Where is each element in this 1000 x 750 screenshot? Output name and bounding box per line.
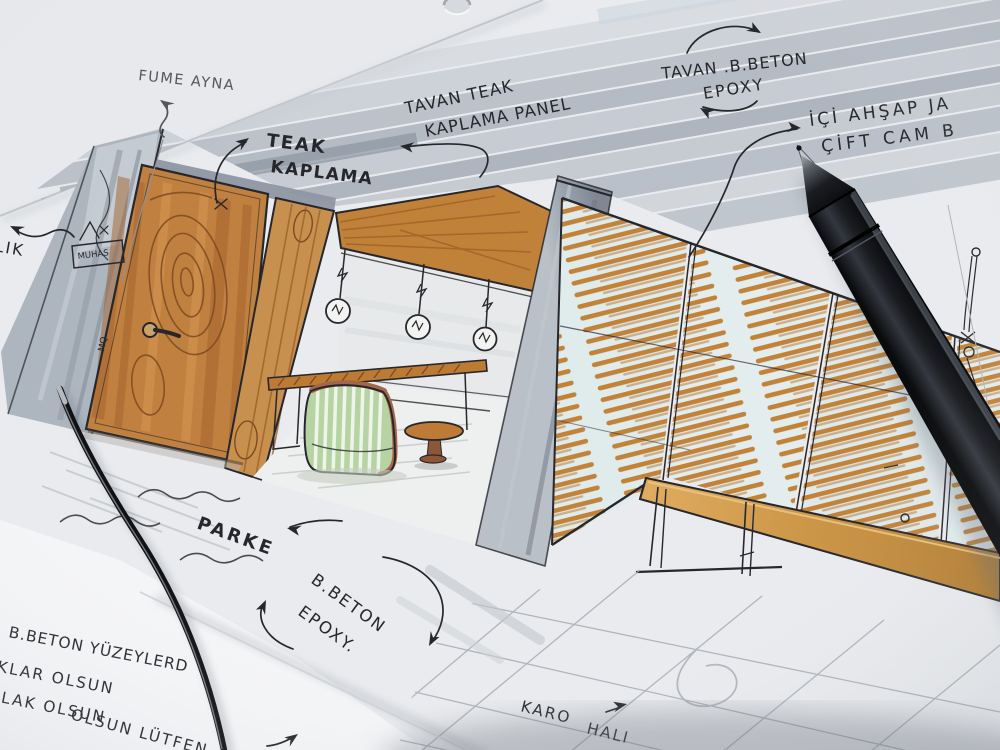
photo-of-sketch: FUME AYNA TEAK KAPLAMA TAVAN TEAK KAPLAM… [0, 0, 1000, 750]
photo-vignette [0, 0, 1000, 750]
sketch-scene: FUME AYNA TEAK KAPLAMA TAVAN TEAK KAPLAM… [0, 0, 1000, 750]
